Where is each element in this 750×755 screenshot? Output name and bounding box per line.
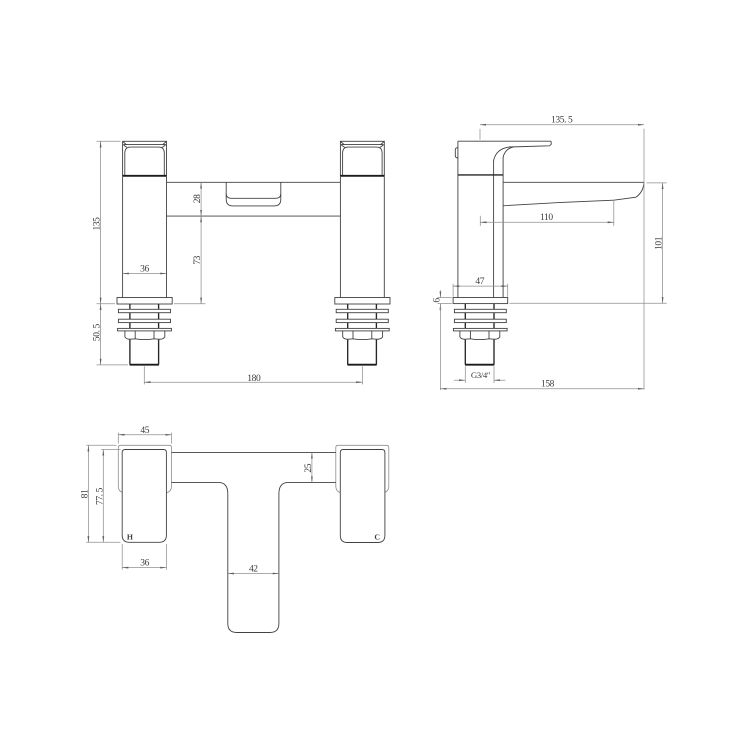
svg-text:42: 42 bbox=[249, 564, 258, 574]
svg-text:28: 28 bbox=[193, 194, 203, 203]
svg-text:101: 101 bbox=[655, 236, 665, 250]
svg-text:135: 135 bbox=[92, 217, 102, 231]
svg-text:C: C bbox=[374, 532, 380, 541]
svg-text:50. 5: 50. 5 bbox=[92, 323, 102, 341]
svg-text:77. 5: 77. 5 bbox=[95, 487, 105, 505]
svg-text:45: 45 bbox=[140, 426, 149, 436]
svg-text:36: 36 bbox=[140, 264, 149, 274]
svg-text:180: 180 bbox=[247, 374, 261, 384]
svg-text:135. 5: 135. 5 bbox=[551, 116, 573, 126]
svg-text:158: 158 bbox=[541, 380, 555, 390]
svg-text:G3/4″: G3/4″ bbox=[471, 370, 491, 380]
svg-text:110: 110 bbox=[540, 213, 553, 223]
svg-text:73: 73 bbox=[193, 255, 203, 264]
svg-text:25: 25 bbox=[304, 463, 314, 472]
svg-text:6: 6 bbox=[432, 298, 442, 303]
svg-text:H: H bbox=[127, 532, 133, 541]
svg-text:81: 81 bbox=[80, 489, 90, 498]
svg-text:36: 36 bbox=[140, 559, 149, 569]
svg-text:47: 47 bbox=[475, 277, 484, 287]
